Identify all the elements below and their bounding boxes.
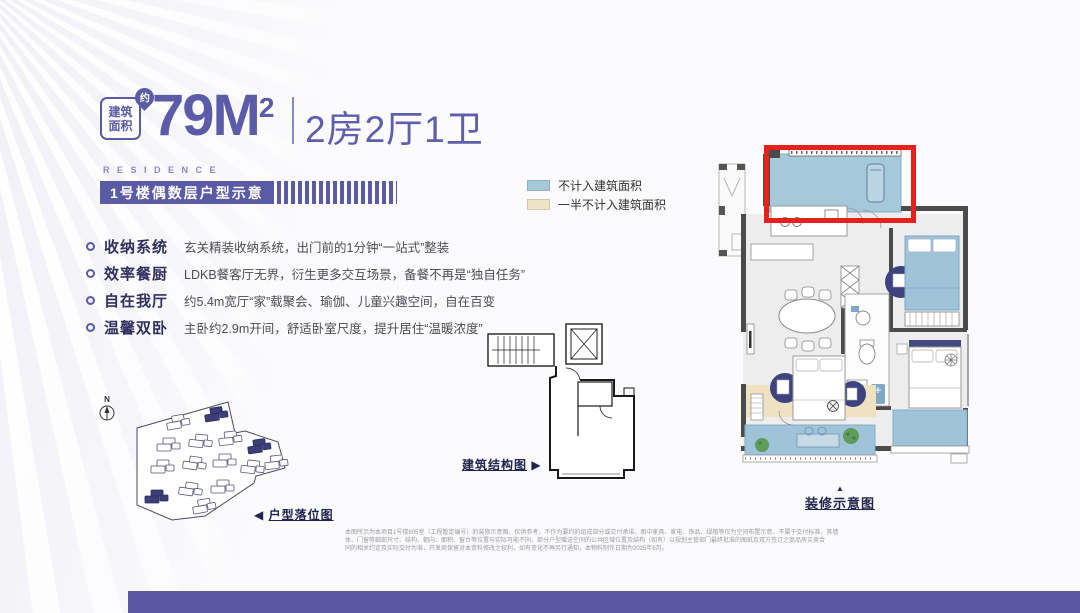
ac-outdoor-unit	[951, 454, 967, 463]
disclaimer-line: 体、门窗等细部尺寸、结构、朝向、面积、窗台等位置与实际可能不同，部分户型赠送空间…	[345, 537, 1032, 545]
toilet	[859, 344, 875, 364]
legend-swatch-blue	[527, 180, 550, 191]
nightstand	[893, 274, 905, 287]
floor-type-banner: 1号楼偶数层户型示意	[100, 181, 274, 204]
unit-layout-text: 2房2厅1卫	[305, 99, 484, 153]
left-arrow-icon: ◀	[254, 508, 264, 522]
decor-plan-label[interactable]: ▲ 装修示意图	[798, 484, 882, 512]
sideboard	[751, 244, 813, 260]
up-arrow-icon: ▲	[798, 484, 882, 493]
disclaimer-text: 本图所示为本项目1号楼605室（工程暂定编号）的装修示意图，仅供参考，不作为要约…	[345, 529, 1032, 553]
feature-row-kitchen: 效率餐厨 LDKB餐客厅无界，衍生更多交互场景，备餐不再是“独自任务”	[86, 260, 516, 287]
bullet-icon	[86, 269, 95, 278]
bathroom-sink	[856, 311, 870, 325]
bottom-bar	[128, 591, 1080, 613]
bedroom-balcony-blue	[893, 410, 967, 446]
feature-row-livingroom: 自在我厅 约5.4m宽厅“家”载聚会、瑜伽、儿童兴趣空间，自在百变	[86, 287, 516, 314]
svg-text:N: N	[104, 395, 110, 404]
feature-title: 温馨双卧	[104, 317, 184, 338]
disclaimer-line: 本图所示为本项目1号楼605室（工程暂定编号）的装修示意图，仅供参考，不作为要约…	[345, 529, 1032, 537]
bullet-icon	[86, 242, 95, 251]
legend-label: 不计入建筑面积	[558, 177, 642, 194]
unit-outline	[550, 366, 634, 478]
feature-title: 效率餐厨	[104, 263, 184, 284]
bullet-icon	[86, 323, 95, 332]
residence-label: RESIDENCE	[103, 165, 223, 175]
headboard	[909, 340, 961, 347]
area-badge-line2: 面积	[108, 119, 132, 133]
ceiling-fan-icon	[828, 401, 839, 412]
approx-label: 约	[140, 90, 150, 105]
disclaimer-line: 同的相关约定及实际交付为准，开发商保留对本资料修改之权利，如有变化不再另行通知，…	[345, 545, 1032, 553]
feature-row-storage: 收纳系统 玄关精装收纳系统，出门前的1分钟“一站式”整装	[86, 233, 516, 260]
feature-title: 自在我厅	[104, 290, 184, 311]
plant	[755, 438, 769, 452]
legend-row-blue: 不计入建筑面积	[527, 176, 666, 195]
feature-desc: 约5.4m宽厅“家”载聚会、瑜伽、儿童兴趣空间，自在百变	[184, 291, 495, 310]
dining-table	[779, 299, 835, 333]
header-divider	[292, 97, 294, 144]
feature-list: 收纳系统 玄关精装收纳系统，出门前的1分钟“一站式”整装 效率餐厨 LDKB餐客…	[86, 233, 516, 341]
area-legend: 不计入建筑面积 一半不计入建筑面积	[527, 176, 666, 214]
structure-plan-label[interactable]: 建筑结构图 ▶	[462, 456, 542, 473]
bench	[797, 434, 839, 447]
brochure-page: 建筑 面积 约 79M2 2房2厅1卫 RESIDENCE 1号楼偶数层户型示意…	[0, 0, 1080, 613]
legend-swatch-beige	[527, 199, 550, 210]
north-compass-icon: N	[100, 395, 114, 420]
feature-desc: LDKB餐客厅无界，衍生更多交互场景，备餐不再是“独自任务”	[184, 264, 525, 283]
site-plan-label[interactable]: ◀ 户型落位图	[254, 506, 334, 523]
wardrobe	[905, 312, 959, 326]
stairwell	[488, 334, 554, 366]
area-superscript: 2	[259, 92, 275, 123]
feature-title: 收纳系统	[104, 236, 184, 257]
red-highlight-box	[764, 145, 916, 223]
area-badge-line1: 建筑	[108, 105, 132, 119]
feature-desc: 主卧约2.9m开间，舒适卧室尺度，提升居住“温暖浓度”	[184, 318, 483, 337]
feature-desc: 玄关精装收纳系统，出门前的1分钟“一站式”整装	[184, 237, 449, 256]
elevator-shaft	[566, 324, 602, 364]
feature-row-bedrooms: 温馨双卧 主卧约2.9m开间，舒适卧室尺度，提升居住“温暖浓度”	[86, 314, 516, 341]
legend-row-beige: 一半不计入建筑面积	[527, 195, 666, 214]
right-arrow-icon: ▶	[531, 458, 541, 472]
bullet-icon	[86, 296, 95, 305]
legend-label: 一半不计入建筑面积	[558, 196, 666, 213]
plant	[843, 428, 859, 444]
area-value: 79M2	[152, 82, 274, 149]
area-badge: 建筑 面积	[100, 97, 141, 140]
fan-icon	[945, 354, 957, 366]
barcode-decoration	[277, 181, 397, 204]
site-plan-map: N	[93, 388, 323, 553]
